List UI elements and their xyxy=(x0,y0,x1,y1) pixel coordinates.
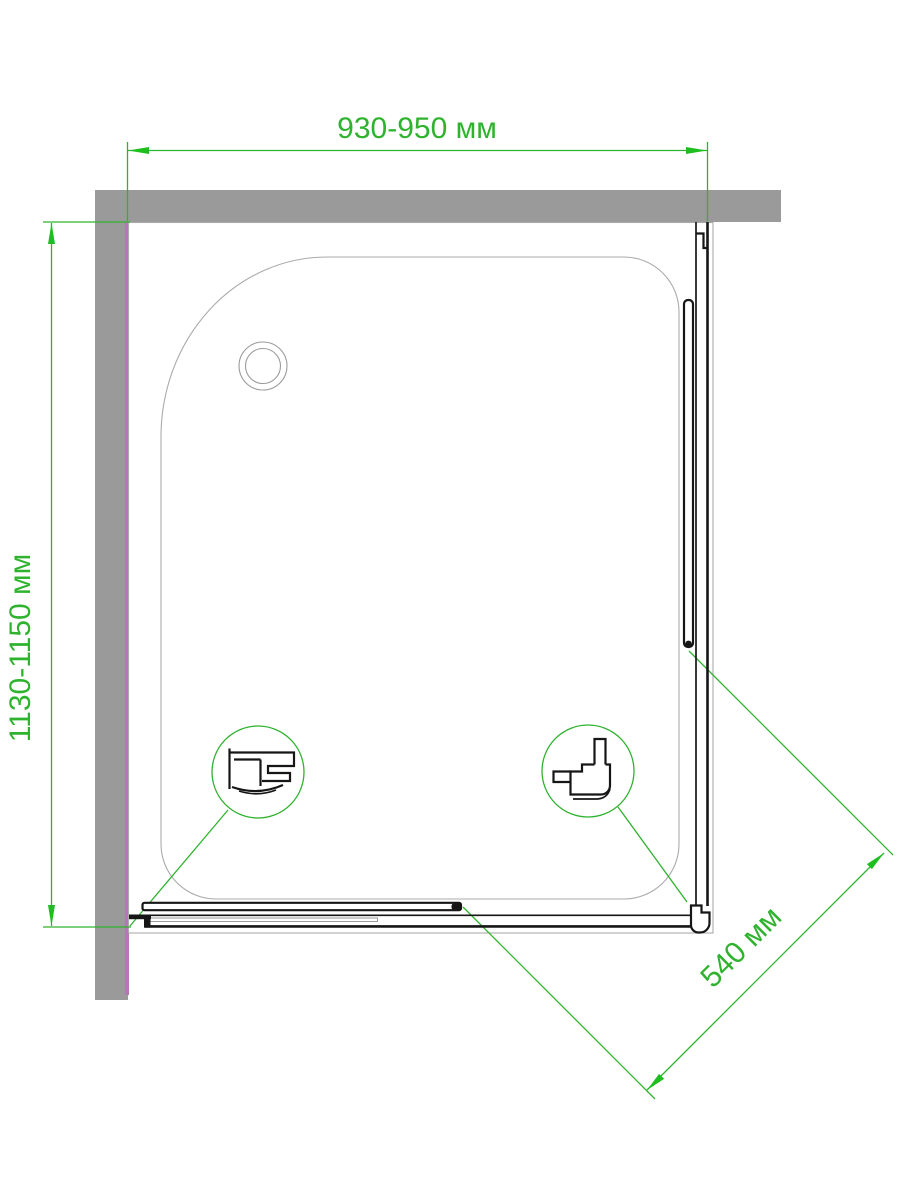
sliding-door-bottom-end-cap xyxy=(452,904,462,910)
track-bottom xyxy=(129,903,710,933)
dimension-door-line xyxy=(647,853,884,1090)
sliding-door-right-end-cap xyxy=(685,641,692,648)
shower-enclosure-plan-drawing: 930-950 мм 1130-1150 мм 540 мм xyxy=(0,0,900,1200)
wall-bracket-bottom-bar xyxy=(129,915,151,920)
wall-left xyxy=(95,190,128,1000)
track-bottom-inner-rail xyxy=(149,918,378,922)
technical-drawing-page: 930-950 мм 1130-1150 мм 540 мм xyxy=(0,0,900,1200)
dimension-door-extension-lower xyxy=(463,907,655,1099)
arrow-left-icon xyxy=(128,147,149,154)
arrow-up-icon xyxy=(48,223,55,244)
wall-top xyxy=(95,190,781,222)
glass-panel-right xyxy=(684,222,708,906)
sliding-door-bottom xyxy=(143,903,462,910)
corner-connector xyxy=(691,906,710,933)
arrow-down-icon xyxy=(48,905,55,926)
dimension-width-label: 930-950 мм xyxy=(337,112,497,145)
sliding-door-right xyxy=(684,300,693,647)
arrow-right-icon xyxy=(686,147,707,154)
dimension-door-extension-upper xyxy=(689,651,893,855)
dimension-depth-label: 1130-1150 мм xyxy=(4,554,37,743)
wall-bracket-bottom-step xyxy=(144,919,151,928)
shower-tray-inner-edge xyxy=(161,257,679,899)
